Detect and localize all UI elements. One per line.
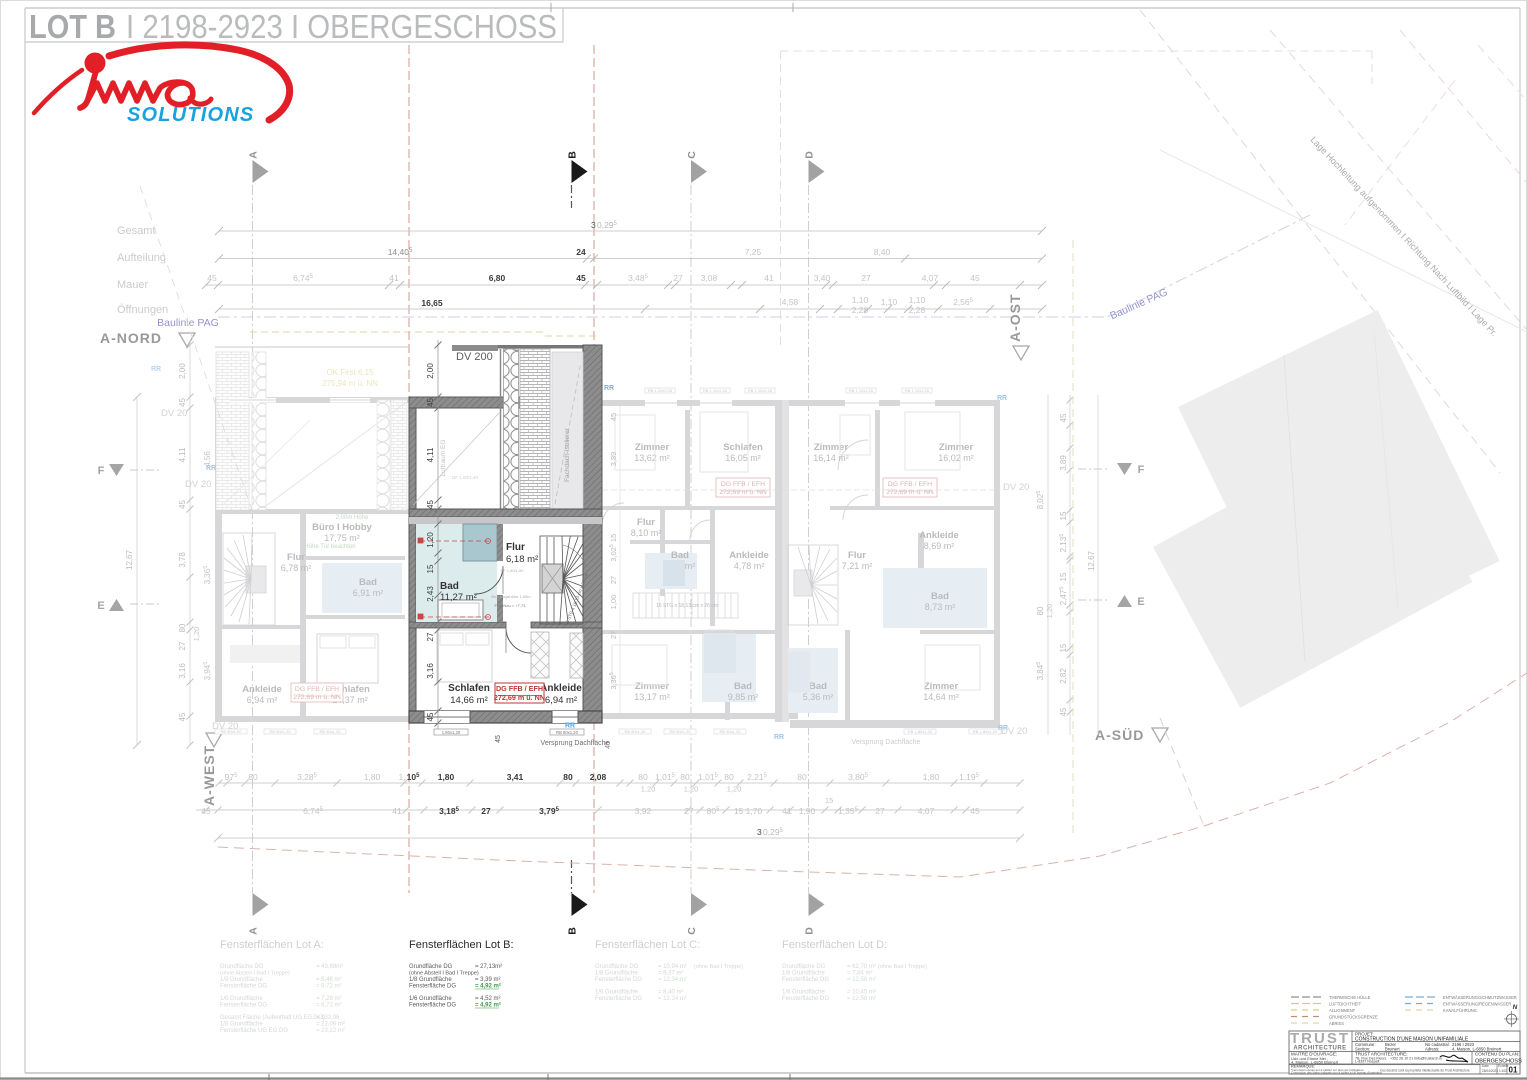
svg-text:1,80x1,20: 1,80x1,20 — [442, 730, 461, 735]
svg-text:CONTENU DU PLAN:: CONTENU DU PLAN: — [1475, 1052, 1519, 1057]
svg-text:Fensterfläche UG,EG,DG: Fensterfläche UG,EG,DG — [220, 1028, 288, 1034]
svg-text:Grundfläche DG: Grundfläche DG — [782, 964, 826, 970]
svg-text:A-WEST: A-WEST — [201, 745, 217, 806]
svg-text:1,20: 1,20 — [192, 627, 201, 642]
svg-text:27: 27 — [609, 631, 618, 639]
svg-text:17,75 m²: 17,75 m² — [324, 533, 360, 543]
svg-text:2,00m Höhe: 2,00m Höhe — [336, 515, 369, 521]
svg-text:15: 15 — [426, 564, 435, 573]
svg-text:1,80: 1,80 — [364, 772, 381, 782]
svg-text:4,56: 4,56 — [203, 451, 212, 467]
svg-text:DG FFB / EFH: DG FFB / EFH — [888, 481, 932, 488]
svg-text:3,41: 3,41 — [507, 772, 524, 782]
svg-text:DV 20: DV 20 — [1003, 482, 1029, 493]
svg-text:= 12,34 m²: = 12,34 m² — [658, 977, 687, 983]
svg-text:2,43: 2,43 — [426, 586, 435, 602]
svg-text:+352 26 10 21 I: +352 26 10 21 I — [1390, 1057, 1415, 1061]
svg-text:DG FFB / EFH: DG FFB / EFH — [721, 481, 765, 488]
svg-text:15: 15 — [1059, 572, 1068, 581]
svg-text:Versprung Dachfläche: Versprung Dachfläche — [852, 739, 921, 746]
svg-text:RB 1,10x2,26: RB 1,10x2,26 — [849, 388, 874, 393]
svg-text:A-SÜD: A-SÜD — [1095, 727, 1144, 743]
svg-text:RB 80x1,20: RB 80x1,20 — [625, 729, 647, 734]
svg-text:THERMISCHE HÜLLE: THERMISCHE HÜLLE — [1329, 995, 1371, 1000]
svg-text:Aufteilung: Aufteilung — [117, 252, 166, 264]
svg-text:D: D — [804, 927, 816, 935]
svg-text:LOT B: LOT B — [29, 8, 116, 45]
svg-text:= 12,34 m²: = 12,34 m² — [658, 996, 687, 1002]
svg-text:Fensterfläche DG: Fensterfläche DG — [409, 1003, 456, 1009]
svg-text:Fensterfläche DG: Fensterfläche DG — [595, 996, 642, 1002]
svg-text:7,21 m²: 7,21 m² — [842, 561, 873, 571]
svg-text:1,: 1, — [398, 772, 405, 782]
svg-text:3,89: 3,89 — [609, 452, 618, 467]
svg-text:Fensterfläche DG: Fensterfläche DG — [595, 977, 642, 983]
svg-text:= 27,13m²: = 27,13m² — [475, 964, 502, 970]
svg-text:15: 15 — [1059, 643, 1068, 652]
svg-text:6,94 m²: 6,94 m² — [247, 695, 278, 705]
svg-text:Zimmer: Zimmer — [635, 442, 670, 453]
svg-text:45: 45 — [1059, 413, 1068, 422]
svg-text:1:100: 1:100 — [1499, 1069, 1507, 1073]
svg-text:RB 1,10x2,26: RB 1,10x2,26 — [703, 388, 728, 393]
svg-text:= 62,70 m²: = 62,70 m² — [847, 964, 876, 970]
svg-text:DV 20: DV 20 — [161, 408, 187, 419]
svg-text:45: 45 — [609, 413, 618, 421]
svg-text:272,69 m ü. NN: 272,69 m ü. NN — [494, 693, 545, 702]
svg-text:RB 80x1,20: RB 80x1,20 — [556, 730, 579, 735]
svg-text:6,94 m²: 6,94 m² — [545, 695, 577, 706]
svg-text:Fensterfläche DG: Fensterfläche DG — [782, 996, 829, 1002]
svg-text:12,67: 12,67 — [1087, 550, 1096, 571]
svg-text:1/6 Grundfläche: 1/6 Grundfläche — [595, 990, 638, 996]
svg-text:Zimmer: Zimmer — [939, 442, 974, 453]
svg-text:Flur: Flur — [506, 542, 525, 553]
svg-text:27: 27 — [481, 806, 491, 816]
svg-text:1,20: 1,20 — [641, 785, 656, 794]
svg-text:ABRISS: ABRISS — [1329, 1021, 1344, 1026]
svg-text:3,92: 3,92 — [635, 806, 652, 816]
svg-text:DG FFB / EFH: DG FFB / EFH — [295, 686, 339, 693]
svg-text:26/04/2023: 26/04/2023 — [1482, 1069, 1498, 1073]
svg-text:OK First 6,15: OK First 6,15 — [326, 368, 374, 377]
svg-text:4,07: 4,07 — [922, 273, 939, 283]
svg-text:ENTWÄSSERUNG/REGENWASSER: ENTWÄSSERUNG/REGENWASSER — [1443, 1002, 1511, 1007]
svg-text:1,20: 1,20 — [727, 785, 742, 794]
svg-text:80: 80 — [797, 772, 807, 782]
svg-text:Baulinie PAG: Baulinie PAG — [157, 317, 219, 329]
svg-text:Gesamt Fläche (Aufenthalt UG,E: Gesamt Fläche (Aufenthalt UG,EG,DG) — [220, 1015, 325, 1021]
svg-text:(ohne Abstell I Bad I Treppe): (ohne Abstell I Bad I Treppe) — [409, 971, 479, 977]
svg-text:= 5,46 m²: = 5,46 m² — [316, 977, 342, 983]
svg-text:DV 20: DV 20 — [212, 721, 238, 732]
svg-text:Ankleide: Ankleide — [242, 684, 282, 695]
svg-text:Fensterfläche DG: Fensterfläche DG — [782, 977, 829, 983]
svg-text:45: 45 — [207, 273, 217, 283]
svg-text:6,18 m²: 6,18 m² — [506, 554, 538, 565]
svg-text:80: 80 — [724, 772, 734, 782]
svg-text:ALLIGNMENT: ALLIGNMENT — [1329, 1008, 1356, 1013]
svg-text:Flur: Flur — [287, 552, 305, 563]
svg-text:RR: RR — [774, 734, 784, 741]
svg-text:DV 200: DV 200 — [456, 351, 493, 363]
svg-text:= 7,84 m²: = 7,84 m² — [847, 971, 873, 977]
svg-text:N: N — [1513, 1004, 1518, 1011]
svg-text:Grundfläche DG: Grundfläche DG — [595, 964, 639, 970]
svg-text:16,14 m²: 16,14 m² — [813, 453, 849, 463]
svg-text:1,20: 1,20 — [426, 532, 435, 548]
svg-text:= 12,58 m²: = 12,58 m² — [847, 996, 876, 1002]
svg-text:RR: RR — [565, 723, 575, 730]
svg-text:3,08: 3,08 — [701, 273, 718, 283]
svg-text:= 4,92 m²: = 4,92 m² — [475, 1002, 501, 1009]
svg-text:45: 45 — [495, 735, 502, 743]
svg-text:RR: RR — [997, 395, 1007, 402]
svg-text:41: 41 — [389, 273, 399, 283]
svg-text:Versprung Dachfläche: Versprung Dachfläche — [541, 740, 610, 747]
svg-text:Zimmer: Zimmer — [814, 442, 849, 453]
svg-text:RB 1,10x2,26: RB 1,10x2,26 — [748, 388, 773, 393]
svg-text:Ankleide: Ankleide — [540, 683, 582, 694]
svg-text:15 1,70: 15 1,70 — [734, 806, 763, 816]
svg-text:= 6,72 m²: = 6,72 m² — [316, 984, 342, 990]
svg-text:45: 45 — [426, 500, 435, 509]
svg-text:Fensterflächen Lot D:: Fensterflächen Lot D: — [782, 939, 887, 951]
svg-text:45: 45 — [970, 273, 980, 283]
svg-text:BF 1,80/1,80: BF 1,80/1,80 — [501, 568, 525, 573]
svg-text:27: 27 — [875, 806, 885, 816]
svg-text:1/6 Grundfläche: 1/6 Grundfläche — [782, 990, 825, 996]
svg-text:12,67: 12,67 — [125, 549, 134, 570]
svg-text:Gesamt: Gesamt — [117, 225, 156, 237]
svg-text:Bad: Bad — [671, 550, 689, 561]
svg-text:F: F — [1138, 464, 1145, 476]
svg-text:B: B — [567, 927, 579, 935]
svg-text:1,20: 1,20 — [1045, 604, 1054, 619]
svg-text:1,10: 1,10 — [909, 295, 926, 305]
svg-text:= 12,58 m²: = 12,58 m² — [847, 977, 876, 983]
svg-text:6,80: 6,80 — [489, 273, 506, 283]
svg-text:Bad: Bad — [359, 577, 377, 588]
svg-text:16,65: 16,65 — [421, 298, 443, 308]
svg-text:4,58: 4,58 — [782, 297, 799, 307]
svg-text:Luftraum EG: Luftraum EG — [440, 440, 447, 477]
svg-text:Fachdach-Isolierer: Fachdach-Isolierer — [564, 427, 571, 482]
svg-text:45: 45 — [178, 398, 187, 407]
svg-text:4,07: 4,07 — [918, 806, 935, 816]
svg-text:1/8 Grundfläche: 1/8 Grundfläche — [220, 1022, 263, 1028]
svg-text:2,00: 2,00 — [426, 363, 435, 379]
svg-text:4,78 m²: 4,78 m² — [734, 561, 765, 571]
svg-text:1,10: 1,10 — [852, 295, 869, 305]
svg-text:C: C — [686, 151, 698, 159]
svg-text:1,80: 1,80 — [923, 772, 940, 782]
svg-text:27: 27 — [861, 273, 871, 283]
svg-text:Schlafen: Schlafen — [448, 683, 490, 694]
svg-text:SOLUTIONS: SOLUTIONS — [127, 104, 254, 126]
svg-text:RB 80x1,20: RB 80x1,20 — [670, 729, 692, 734]
svg-text:Fensterfläche DG: Fensterfläche DG — [220, 984, 267, 990]
svg-text:7,25: 7,25 — [745, 247, 762, 257]
svg-text:4,11: 4,11 — [178, 447, 187, 463]
svg-text:45: 45 — [178, 500, 187, 509]
svg-text:Höhe Tür beachten: Höhe Tür beachten — [304, 544, 355, 550]
svg-text:= 43,69m²: = 43,69m² — [316, 964, 343, 970]
svg-text:= 6,37 m²: = 6,37 m² — [658, 971, 684, 977]
svg-text:2,28: 2,28 — [852, 305, 869, 315]
svg-text:RB 1,80x1,20: RB 1,80x1,20 — [908, 729, 933, 734]
svg-text:27: 27 — [178, 641, 187, 650]
svg-text:Fensterflächen Lot B:: Fensterflächen Lot B: — [409, 939, 514, 951]
svg-text:Grundfläche DG: Grundfläche DG — [220, 964, 264, 970]
svg-text:3,16: 3,16 — [426, 663, 435, 679]
svg-text:Date: Date — [1482, 1064, 1489, 1068]
svg-text:KANALFÜHRUNG: KANALFÜHRUNG — [1443, 1008, 1477, 1013]
svg-text:LUFTDICHTHEIT: LUFTDICHTHEIT — [1329, 1002, 1362, 1007]
svg-text:= 10,45 m²: = 10,45 m² — [847, 990, 876, 996]
svg-text:L'exécution des plans indiqués: L'exécution des plans indiqués non à coi… — [1291, 1070, 1382, 1074]
svg-text:3: 3 — [591, 220, 596, 230]
svg-text:DV 20: DV 20 — [185, 479, 211, 490]
svg-text:45: 45 — [576, 273, 586, 283]
svg-text:A: A — [248, 151, 260, 159]
svg-text:= 10,94 m²: = 10,94 m² — [658, 964, 687, 970]
svg-text:A-NORD: A-NORD — [100, 330, 162, 346]
svg-text:3,78: 3,78 — [178, 552, 187, 568]
svg-text:11,27 m²: 11,27 m² — [440, 592, 477, 603]
svg-text:Bad: Bad — [734, 681, 752, 692]
svg-text:15: 15 — [609, 534, 618, 542]
svg-text:Ankleide: Ankleide — [729, 550, 769, 561]
svg-text:2,08: 2,08 — [590, 772, 607, 782]
svg-text:TRUST: TRUST — [1290, 1030, 1350, 1047]
svg-text:E: E — [97, 600, 104, 612]
svg-text:DV 20: DV 20 — [1001, 726, 1027, 737]
svg-text:80: 80 — [680, 772, 690, 782]
svg-text:= 132,96: = 132,96 — [316, 1015, 340, 1021]
svg-text:2,82: 2,82 — [1059, 668, 1068, 684]
svg-text:27: 27 — [673, 273, 683, 283]
svg-text:2,00: 2,00 — [178, 363, 187, 379]
svg-text:1/8 Grundfläche: 1/8 Grundfläche — [220, 977, 263, 983]
svg-text:45: 45 — [426, 712, 435, 721]
svg-text:15: 15 — [825, 796, 833, 805]
svg-text:27: 27 — [609, 576, 618, 584]
svg-text:6,78 m²: 6,78 m² — [281, 563, 312, 573]
svg-text:= 22,06 m²: = 22,06 m² — [316, 1022, 345, 1028]
svg-text:16 STG x 18,13 cm x 26 cm: 16 STG x 18,13 cm x 26 cm — [656, 603, 718, 609]
svg-text:Flur: Flur — [848, 550, 866, 561]
svg-text:1,80: 1,80 — [438, 772, 455, 782]
svg-text:RR: RR — [604, 385, 614, 392]
svg-text:First Neu = +7,73: First Neu = +7,73 — [495, 603, 527, 608]
svg-text:RB 1,10x2,26: RB 1,10x2,26 — [905, 388, 930, 393]
svg-text:272,69 m ü. NN: 272,69 m ü. NN — [293, 694, 341, 701]
svg-text:3,89: 3,89 — [1059, 455, 1068, 471]
svg-text:8,69 m²: 8,69 m² — [924, 541, 955, 551]
svg-text:24: 24 — [576, 247, 586, 257]
svg-text:80: 80 — [638, 772, 648, 782]
svg-text:80: 80 — [248, 772, 258, 782]
svg-text:45: 45 — [426, 398, 435, 407]
svg-text:RB 80x1,20: RB 80x1,20 — [270, 729, 292, 734]
svg-text:45: 45 — [970, 806, 980, 816]
svg-text:Bad: Bad — [931, 591, 949, 602]
svg-text:RB 1,80x1,20: RB 1,80x1,20 — [973, 729, 998, 734]
svg-text:info@trustarch.lu: info@trustarch.lu — [1415, 1057, 1442, 1061]
svg-text:1,90: 1,90 — [799, 806, 816, 816]
svg-text:(ohne Bad I Treppe): (ohne Bad I Treppe) — [878, 964, 927, 970]
svg-text:Échelle: Échelle — [1498, 1063, 1509, 1068]
svg-text:1/6 Grundfläche: 1/6 Grundfläche — [409, 996, 452, 1002]
svg-text:80: 80 — [563, 772, 573, 782]
svg-text:80: 80 — [178, 623, 187, 632]
svg-text:275,94 m ü. NN: 275,94 m ü. NN — [322, 379, 378, 388]
svg-text:1/8 Grundfläche: 1/8 Grundfläche — [782, 971, 825, 977]
svg-text:5,36 m²: 5,36 m² — [803, 692, 834, 702]
svg-text:1,10: 1,10 — [881, 297, 898, 307]
svg-text:1,20: 1,20 — [684, 785, 699, 794]
svg-text:Fensterfläche DG: Fensterfläche DG — [220, 1003, 267, 1009]
svg-text:13,17 m²: 13,17 m² — [634, 692, 670, 702]
svg-text:L-8357 Nospelt: L-8357 Nospelt — [1355, 1060, 1379, 1064]
svg-text:2,28: 2,28 — [909, 305, 926, 315]
svg-text:27: 27 — [426, 632, 435, 641]
svg-text:Flur: Flur — [637, 517, 655, 528]
svg-text:41: 41 — [782, 806, 792, 816]
svg-text:= 4,92 m²: = 4,92 m² — [475, 983, 501, 990]
svg-text:GRUNDSTÜCKSGRENZE: GRUNDSTÜCKSGRENZE — [1329, 1015, 1378, 1020]
svg-text:RB 1,10x2,26: RB 1,10x2,26 — [648, 388, 673, 393]
svg-text:E: E — [1137, 596, 1144, 608]
svg-text:Ankleide: Ankleide — [919, 530, 959, 541]
svg-text:9,85 m²: 9,85 m² — [728, 692, 759, 702]
svg-text:I 2198-2923 I OBERGESCHOSS: I 2198-2923 I OBERGESCHOSS — [126, 8, 557, 45]
svg-text:8,40: 8,40 — [874, 247, 891, 257]
svg-text:RB 80x1,20: RB 80x1,20 — [720, 729, 742, 734]
svg-text:= 6,72 m²: = 6,72 m² — [316, 1003, 342, 1009]
svg-text:A-OST: A-OST — [1007, 293, 1023, 342]
svg-text:= 7,28 m²: = 7,28 m² — [316, 996, 342, 1002]
svg-text:41: 41 — [392, 806, 402, 816]
svg-text:3,40: 3,40 — [814, 273, 831, 283]
svg-text:Fensterfläche DG: Fensterfläche DG — [409, 984, 456, 990]
svg-text:16,02 m²: 16,02 m² — [938, 453, 974, 463]
svg-text:RB 80x1,20: RB 80x1,20 — [320, 729, 342, 734]
svg-text:(ohne Abstell I Bad I Treppe): (ohne Abstell I Bad I Treppe) — [220, 971, 290, 977]
svg-text:Zimmer: Zimmer — [635, 681, 670, 692]
svg-text:(ohne Bad I Treppe): (ohne Bad I Treppe) — [694, 964, 743, 970]
svg-text:45: 45 — [201, 806, 211, 816]
svg-text:C: C — [686, 927, 698, 935]
svg-text:3: 3 — [757, 827, 762, 837]
svg-text:Schlafen: Schlafen — [723, 442, 763, 453]
svg-text:3,16: 3,16 — [178, 663, 187, 679]
svg-text:ENTWÄSSERUNG/SCHMUTZWASSER: ENTWÄSSERUNG/SCHMUTZWASSER — [1443, 995, 1517, 1000]
svg-text:1,00: 1,00 — [609, 595, 618, 610]
svg-text:Ces dessins sont la propriété: Ces dessins sont la propriété intellectu… — [1380, 1069, 1470, 1073]
svg-text:45: 45 — [178, 712, 187, 721]
svg-text:= 8,40 m²: = 8,40 m² — [658, 990, 684, 996]
svg-text:A: A — [248, 927, 260, 935]
svg-text:B: B — [567, 151, 579, 159]
svg-text:1/8 Grundfläche: 1/8 Grundfläche — [595, 971, 638, 977]
svg-text:14,64 m²: 14,64 m² — [923, 692, 959, 702]
svg-text:Adress:: Adress: — [1425, 1047, 1439, 1052]
svg-text:DG FFB / EFH: DG FFB / EFH — [496, 684, 543, 693]
svg-text:6,91 m²: 6,91 m² — [353, 588, 384, 598]
svg-text:8,73 m²: 8,73 m² — [925, 602, 956, 612]
svg-text:F: F — [98, 465, 105, 477]
svg-text:Mauer: Mauer — [117, 279, 149, 291]
svg-text:Bad: Bad — [809, 681, 827, 692]
svg-text:Brüstungshöhe 1,00m: Brüstungshöhe 1,00m — [491, 594, 531, 599]
svg-text:27: 27 — [684, 806, 694, 816]
svg-text:= 23,22 m²: = 23,22 m² — [316, 1028, 345, 1034]
svg-text:8,10 m²: 8,10 m² — [631, 528, 662, 538]
svg-text:4,11: 4,11 — [426, 447, 435, 463]
svg-text:80: 80 — [1036, 606, 1045, 615]
svg-text:15: 15 — [1059, 511, 1068, 520]
svg-text:Öffnungen: Öffnungen — [117, 304, 168, 316]
svg-text:D: D — [804, 151, 816, 159]
svg-text:41: 41 — [764, 273, 774, 283]
svg-text:Grundfläche DG: Grundfläche DG — [409, 964, 453, 970]
svg-text:= 3,39 m²: = 3,39 m² — [475, 977, 501, 983]
svg-text:16,05 m²: 16,05 m² — [725, 453, 761, 463]
svg-text:Büro I Hobby: Büro I Hobby — [312, 522, 372, 533]
svg-text:45: 45 — [1059, 707, 1068, 716]
svg-text:1/8 Grundfläche: 1/8 Grundfläche — [409, 977, 452, 983]
svg-text:Fensterflächen Lot C:: Fensterflächen Lot C: — [595, 939, 700, 951]
svg-text:1/6 Grundfläche: 1/6 Grundfläche — [220, 996, 263, 1002]
svg-text:Bad: Bad — [440, 581, 459, 592]
svg-text:01: 01 — [1509, 1066, 1518, 1075]
svg-text:RR: RR — [151, 366, 161, 373]
svg-text:Fensterflächen Lot A:: Fensterflächen Lot A: — [220, 939, 324, 951]
svg-text:DF 1,80/1,40: DF 1,80/1,40 — [452, 475, 479, 480]
svg-text:= 4,52 m²: = 4,52 m² — [475, 996, 501, 1002]
svg-text:14,66 m²: 14,66 m² — [450, 695, 488, 706]
svg-text:13,62 m²: 13,62 m² — [634, 453, 670, 463]
